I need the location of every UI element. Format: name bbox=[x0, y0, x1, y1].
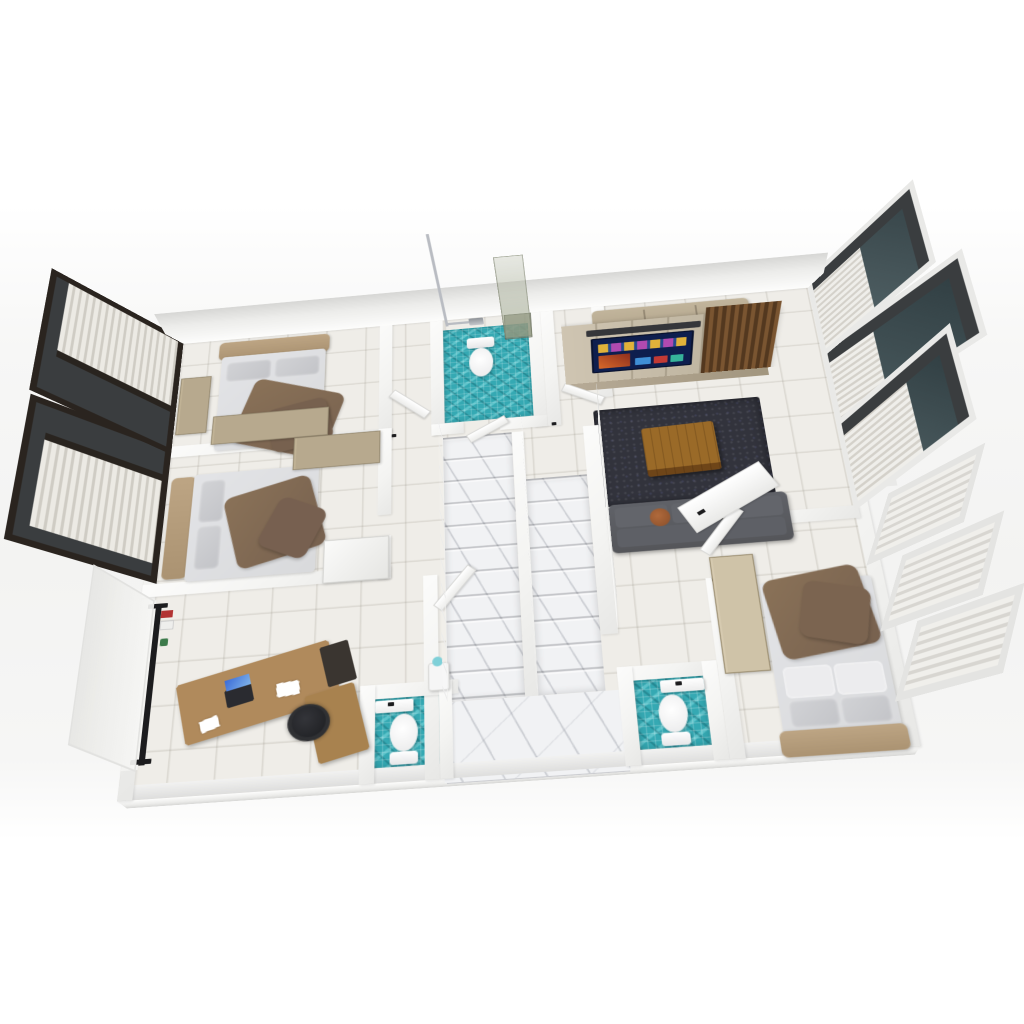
tv-app-tile bbox=[670, 354, 683, 362]
shower-head bbox=[468, 317, 484, 325]
bed-pillow bbox=[274, 355, 320, 378]
render-viewport bbox=[0, 0, 1024, 1024]
window-blind bbox=[29, 439, 161, 563]
wardrobe-bedroomA-west bbox=[175, 376, 212, 435]
bed-pillow bbox=[193, 525, 222, 571]
tv-app-tile bbox=[635, 357, 651, 365]
tv-app-row bbox=[598, 337, 687, 353]
perspective-camera bbox=[0, 0, 1024, 1024]
toilet-bowl bbox=[469, 347, 494, 378]
tv-app-tile-featured bbox=[598, 353, 630, 369]
bed-pillow bbox=[198, 479, 227, 523]
floorplan-scene bbox=[117, 276, 920, 801]
tv-app-tile bbox=[654, 355, 668, 363]
window-blind bbox=[57, 283, 178, 406]
